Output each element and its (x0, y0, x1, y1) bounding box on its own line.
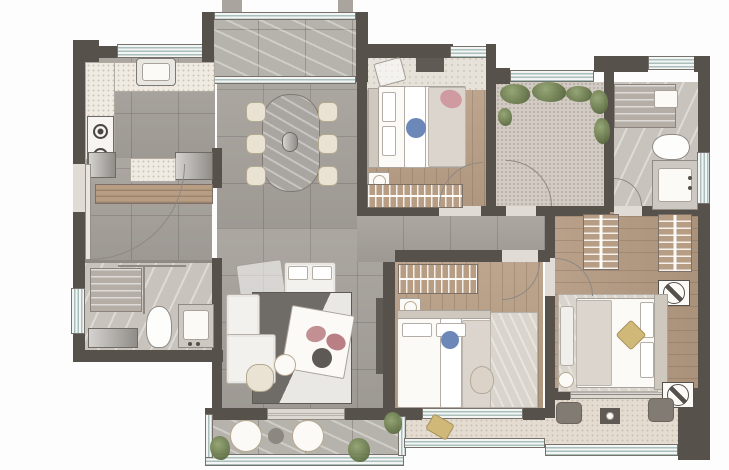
shower-glass (143, 266, 145, 314)
bed1-round-pillow (406, 118, 426, 138)
bed2-pillow (402, 323, 432, 337)
master-headboard (654, 294, 668, 390)
tv (376, 298, 383, 374)
bathroom1-slider-line (118, 265, 186, 267)
wall (212, 148, 222, 188)
wall (523, 408, 545, 420)
toilet (652, 134, 690, 160)
bed2-round-pillow (441, 331, 459, 349)
plant (532, 82, 566, 102)
wall (205, 408, 267, 420)
dining-chair (246, 134, 266, 154)
sofa-pillow (288, 266, 308, 280)
terrace-door-gap (506, 206, 536, 216)
wall (73, 262, 85, 288)
bathroom1-window (71, 288, 85, 334)
wall (395, 250, 502, 262)
master-pillow (640, 342, 654, 378)
wall (698, 204, 710, 394)
tray-dot (606, 412, 614, 420)
plant (566, 86, 592, 102)
plant (590, 90, 608, 114)
master-duvet (576, 300, 612, 386)
bathroom2-side-window (697, 152, 710, 204)
rattan-chair (246, 364, 274, 392)
sofa-pillow (312, 266, 332, 280)
plant (594, 118, 610, 144)
wall (357, 44, 367, 214)
bed2-duvet (462, 320, 491, 408)
tv-wall (383, 262, 395, 418)
bedroom2-door-gap (502, 250, 538, 262)
table-decor (282, 132, 298, 152)
living-balcony-slider (267, 408, 345, 420)
wall (481, 206, 496, 216)
faucet-dot (188, 342, 192, 346)
shower-slats (90, 268, 142, 312)
living-balcony-rail (205, 454, 404, 466)
dining-chair (246, 166, 266, 186)
wall (357, 44, 453, 58)
dining-chair (318, 166, 338, 186)
terrace-window (510, 70, 594, 82)
faucet-dot (688, 186, 692, 190)
kitchen-window (117, 44, 211, 58)
wardrobe (658, 214, 692, 272)
plant (498, 108, 512, 126)
dining-chair (246, 102, 266, 122)
dining-window (214, 76, 356, 84)
floor-cushion (556, 402, 582, 424)
flower-bed-floor (212, 18, 358, 76)
dining-chair (318, 102, 338, 122)
floor-cushion (648, 398, 674, 422)
bedroom2-balcony-rail (404, 438, 545, 448)
bed1-pillow (382, 126, 396, 156)
dining-chair (318, 134, 338, 154)
plant (210, 436, 230, 460)
bedroom1-window (450, 46, 490, 58)
wardrobe (583, 214, 619, 270)
wall (486, 44, 496, 214)
wall (73, 350, 223, 362)
wall (85, 46, 117, 58)
faucet-dot (688, 176, 692, 180)
wardrobe (398, 264, 478, 294)
teddy-bear (470, 366, 494, 394)
wall (594, 56, 648, 72)
master-balcony-rail (545, 444, 678, 456)
wall (73, 40, 85, 164)
pouf (558, 372, 574, 388)
stool (274, 354, 296, 376)
vanity-basin (183, 310, 209, 340)
wall (496, 68, 510, 84)
toilet (146, 306, 172, 348)
wall (73, 212, 85, 262)
bathroom2-window (648, 56, 698, 70)
balcony-chair (292, 420, 324, 452)
entry-door-gap (73, 164, 85, 212)
wall (538, 250, 550, 262)
bed-bench (560, 306, 574, 366)
vanity-basin (658, 168, 692, 202)
plant (348, 438, 370, 462)
kitchen-sink-basin (142, 63, 170, 81)
wall (496, 206, 506, 216)
master-door-gap (545, 258, 555, 296)
bathroom2-fixture (654, 90, 678, 108)
plant (384, 412, 402, 434)
plant (500, 84, 530, 104)
bath-shelf (88, 328, 138, 348)
bed1-pillow (382, 92, 396, 122)
side-table (312, 348, 332, 368)
flower-bed-glass (214, 12, 356, 20)
stove-burner (93, 124, 108, 139)
desk (416, 58, 444, 72)
balcony-table (268, 428, 284, 444)
bathroom1-slider-line (146, 261, 212, 263)
balcony-chair (230, 420, 262, 452)
faucet-dot (196, 342, 200, 346)
floor-plan (0, 0, 729, 470)
wall (698, 56, 710, 152)
